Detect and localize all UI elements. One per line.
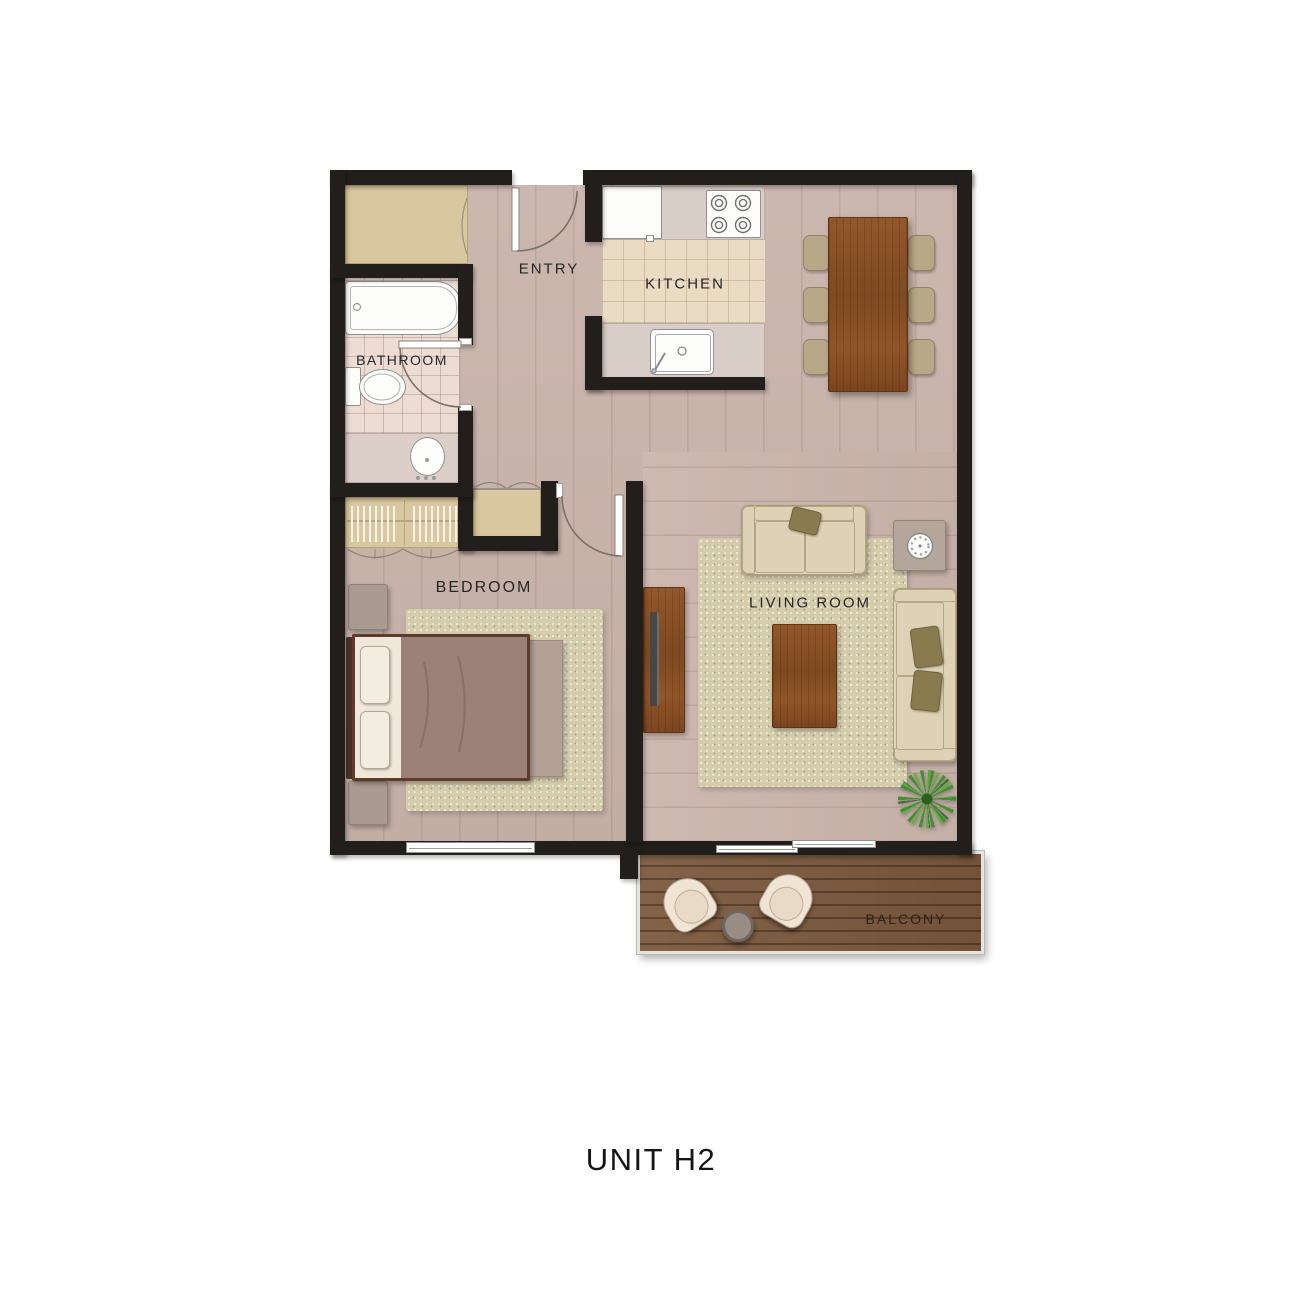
room-label-balcony: BALCONY: [866, 911, 947, 927]
fridge: [602, 186, 662, 239]
wall-bath-right-upper: [458, 264, 473, 345]
room-label-bedroom: BEDROOM: [436, 579, 533, 597]
dining-chair-right-3: [908, 339, 935, 375]
dining-chair-right-2: [908, 287, 935, 323]
room-label-entry: ENTRY: [519, 261, 580, 278]
balcony-slider-right: [792, 840, 876, 848]
toilet-bowl: [359, 369, 406, 405]
wardrobe-hangers-left: [351, 506, 397, 542]
wall-kitchen-left-top: [585, 183, 602, 242]
sofa-arm-left: [742, 506, 755, 574]
entry-storage-closet: [345, 185, 468, 264]
side-table: [893, 520, 946, 571]
wall-top-right: [583, 170, 972, 185]
dining-table: [828, 217, 908, 392]
loveseat-pillow-2: [910, 670, 943, 713]
floor-plan-canvas: ENTRY KITCHEN BATHROOM BEDROOM LIVING RO…: [0, 0, 1306, 1306]
wall-vanity-bottom: [330, 483, 473, 497]
bed-blanket: [401, 637, 527, 778]
room-label-bathroom: BATHROOM: [356, 352, 448, 368]
kitchen-sink-basin: [655, 334, 711, 372]
bed: [352, 634, 530, 781]
loveseat: [893, 588, 957, 762]
dining-chair-right-1: [908, 235, 935, 271]
room-label-living-room: LIVING ROOM: [749, 595, 871, 612]
vanity-sink: [410, 437, 445, 476]
counter-handle-notch: [646, 235, 654, 242]
tv: [650, 612, 659, 706]
hall-closet: [473, 488, 541, 537]
dining-chair-left-1: [803, 235, 830, 271]
sofa-three-seat: [741, 505, 867, 575]
loveseat-arm-top: [894, 589, 956, 602]
balcony-slider-left: [716, 845, 798, 853]
wardrobe-divider: [404, 500, 405, 545]
bathroom-door-jamb-top: [459, 338, 472, 345]
wall-bath-right-lower: [458, 406, 473, 551]
wall-kitchen-bottom: [585, 377, 765, 390]
coffee-table: [772, 624, 837, 728]
loveseat-back: [942, 599, 956, 753]
balcony-table: [722, 910, 754, 942]
wall-hall-closet-bottom: [458, 536, 555, 551]
wall-balcony-stub: [620, 852, 638, 879]
bedroom-door-jamb-left: [556, 483, 563, 498]
wall-closet-bottom: [330, 264, 470, 278]
wall-right: [957, 170, 972, 855]
bed-pillow-1: [360, 646, 390, 704]
bathtub: [345, 281, 462, 335]
wall-top-left: [330, 170, 512, 185]
wall-bedroom-living: [626, 481, 643, 842]
bathroom-door-jamb-bottom: [459, 404, 472, 411]
loveseat-pillow-1: [909, 625, 943, 669]
plan-title: UNIT H2: [586, 1142, 717, 1178]
bedroom-window: [406, 842, 535, 853]
nightstand-top: [348, 584, 388, 630]
dining-chair-left-3: [803, 339, 830, 375]
nightstand-bottom: [348, 781, 388, 825]
stove: [706, 190, 761, 238]
bed-pillow-2: [360, 711, 390, 769]
bathtub-inner: [350, 286, 457, 330]
dining-chair-left-2: [803, 287, 830, 323]
potted-plant: [898, 770, 956, 828]
wardrobe-hangers-right: [413, 506, 459, 542]
room-label-kitchen: KITCHEN: [645, 276, 725, 293]
